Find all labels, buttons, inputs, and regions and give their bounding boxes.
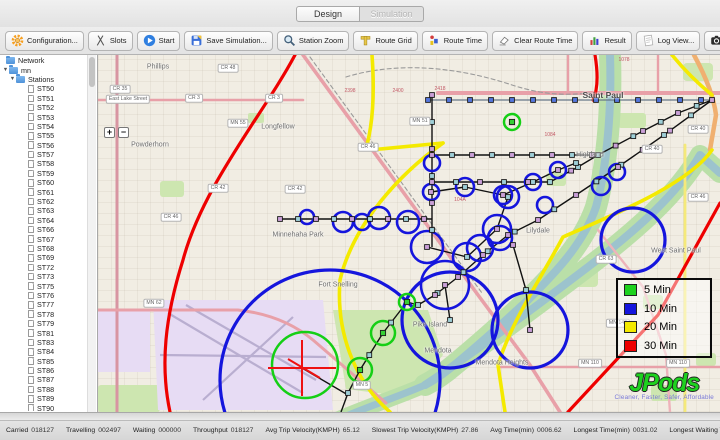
legend-color-swatch (624, 321, 637, 333)
station-label: ST52 (37, 103, 54, 112)
toolbar-button-label: Slots (110, 36, 127, 45)
travel-time-legend: 5 Min10 Min20 Min30 Min (616, 278, 712, 358)
station-file-icon (28, 245, 34, 253)
result-button[interactable]: Result (582, 31, 631, 51)
tree-node-station-st90[interactable]: ST90 (0, 403, 88, 411)
tree-node-station-st73[interactable]: ST73 (0, 272, 88, 281)
road-shield-label: CR 63 (596, 255, 617, 264)
status-field-value: 000000 (158, 427, 181, 434)
station-file-icon (28, 95, 34, 103)
station-label: ST59 (37, 169, 54, 178)
map-h-scrollbar[interactable] (0, 412, 720, 420)
house-number-label: 1078 (618, 57, 629, 63)
station-label: ST79 (37, 319, 54, 328)
station-file-icon (28, 132, 34, 140)
toolbar-button-label: Log View... (658, 36, 695, 45)
tree-node-station-st56[interactable]: ST56 (0, 141, 88, 150)
station-file-icon (28, 301, 34, 309)
place-label: Lilydale (526, 228, 550, 235)
station-label: ST66 (37, 225, 54, 234)
status-bar: Carried018127Travelling002497Waiting0000… (0, 420, 720, 440)
legend-row: 5 Min (624, 284, 704, 296)
slots-button[interactable]: Slots (88, 31, 133, 51)
tree-node-station-st83[interactable]: ST83 (0, 338, 88, 347)
status-field-value: 002497 (98, 427, 121, 434)
station-label: ST75 (37, 282, 54, 291)
status-slowest-trip-velocity-kmph: Slowest Trip Velocity(KMPH)27.86 (372, 427, 479, 434)
magnifier-icon (283, 34, 296, 47)
tree-node-station-st57[interactable]: ST57 (0, 150, 88, 159)
station-label: ST57 (37, 150, 54, 159)
tree-scrollbar[interactable] (87, 55, 96, 412)
station-file-icon (28, 113, 34, 121)
house-number-label: 2400 (392, 88, 403, 94)
station-label: ST61 (37, 188, 54, 197)
tab-strip: Design Simulation (0, 0, 720, 27)
station-label: ST62 (37, 197, 54, 206)
station-file-icon (28, 188, 34, 196)
place-label: Highland (576, 152, 604, 159)
status-field-value: 0031.02 (633, 427, 658, 434)
tree-node-station-st69[interactable]: ST69 (0, 253, 88, 262)
road-shield-label: CR 46 (358, 143, 379, 152)
status-field-value: 27.86 (461, 427, 478, 434)
station-label: ST77 (37, 300, 54, 309)
station-label: ST55 (37, 131, 54, 140)
status-longest-time-min: Longest Time(min)0031.02 (574, 427, 658, 434)
place-label: Powderhorn (131, 142, 169, 149)
road-shield-label: MN 110 (666, 359, 690, 368)
station-file-icon (28, 292, 34, 300)
station-file-icon (28, 217, 34, 225)
station-label: ST60 (37, 178, 54, 187)
station-file-icon (28, 310, 34, 318)
road-shield-label: CR 42 (208, 184, 229, 193)
map-graphics (98, 55, 720, 412)
station-label: ST90 (37, 404, 54, 411)
zoom-in-button[interactable]: + (104, 127, 115, 138)
station-label: ST64 (37, 216, 54, 225)
place-label: West Saint Paul (651, 248, 701, 255)
station-label: ST53 (37, 113, 54, 122)
place-label: Longfellow (261, 124, 294, 131)
tree-node-station-st81[interactable]: ST81 (0, 328, 88, 337)
tree-node-station-st60[interactable]: ST60 (0, 178, 88, 187)
status-field-label: Slowest Trip Velocity(KMPH) (372, 427, 459, 434)
toolbar-button-label: Station Zoom (299, 36, 344, 45)
station-label: ST76 (37, 291, 54, 300)
chart-icon (588, 34, 601, 47)
status-field-label: Throughput (193, 427, 228, 434)
toolbar: Configuration...SlotsStartSave Simulatio… (0, 27, 720, 55)
tree-node-network[interactable]: Network (0, 56, 88, 65)
legend-row: 10 Min (624, 303, 704, 315)
place-label: Phillips (147, 64, 169, 71)
station-file-icon (28, 329, 34, 337)
eraser-icon (498, 34, 511, 47)
status-field-label: Carried (6, 427, 28, 434)
zoom-out-button[interactable]: − (118, 127, 129, 138)
tree-node-station-st61[interactable]: ST61 (0, 187, 88, 196)
station-file-icon (28, 151, 34, 159)
road-shield-label: CR 40 (642, 145, 663, 154)
status-longest-waiting-time-min: Longest Waiting Time(min)0000.00 (669, 427, 720, 434)
station-label: ST78 (37, 310, 54, 319)
road-shield-label: CR 3 (185, 94, 203, 103)
station-file-icon (28, 179, 34, 187)
station-label: ST83 (37, 338, 54, 347)
tree-node-station-st62[interactable]: ST62 (0, 197, 88, 206)
road-shield-label: MN 62 (143, 299, 164, 308)
camera-icon (710, 34, 720, 47)
log-icon (642, 34, 655, 47)
house-number-label: 2398 (344, 88, 355, 94)
road-shield-label: CR 46 (161, 213, 182, 222)
expand-triangle-icon[interactable]: ▼ (9, 76, 16, 82)
status-field-value: 0006.62 (537, 427, 562, 434)
road-shield-label: CR 48 (218, 64, 239, 73)
station-file-icon (28, 376, 34, 384)
tree-node-station-st88[interactable]: ST88 (0, 385, 88, 394)
legend-label: 5 Min (644, 284, 671, 296)
status-avg-trip-velocity-kmph: Avg Trip Velocity(KMPH)65.12 (265, 427, 359, 434)
tree-node-station-st67[interactable]: ST67 (0, 234, 88, 243)
station-label: ST73 (37, 272, 54, 281)
log-view-button[interactable]: Log View... (636, 31, 701, 51)
folder-icon (9, 67, 18, 74)
tab-simulation[interactable]: Simulation (360, 6, 424, 22)
station-label: ST86 (37, 366, 54, 375)
station-label: ST67 (37, 235, 54, 244)
route-grid-button[interactable]: Route Grid (353, 31, 417, 51)
folder-icon (16, 76, 25, 83)
toolbar-button-label: Result (604, 36, 625, 45)
network-tree: Network▼mn▼StationsST50ST51ST52ST53ST54S… (0, 56, 88, 411)
place-label: Minnehaha Park (273, 232, 324, 239)
legend-color-swatch (624, 284, 637, 296)
station-file-icon (28, 141, 34, 149)
station-file-icon (28, 85, 34, 93)
tree-node-station-st89[interactable]: ST89 (0, 394, 88, 403)
jpods-logo-text: JPods (615, 371, 714, 395)
legend-row: 20 Min (624, 321, 704, 333)
station-file-icon (28, 404, 34, 411)
tree-node-station-st68[interactable]: ST68 (0, 244, 88, 253)
tree-node-station-st53[interactable]: ST53 (0, 112, 88, 121)
tree-node-station-st52[interactable]: ST52 (0, 103, 88, 112)
tree-node-station-st64[interactable]: ST64 (0, 216, 88, 225)
folder-icon (6, 57, 15, 64)
status-avg-time-min: Avg Time(min)0006.62 (490, 427, 561, 434)
gear-icon (11, 34, 24, 47)
status-field-label: Travelling (66, 427, 95, 434)
station-label: ST58 (37, 159, 54, 168)
place-label: Pike Island (413, 322, 447, 329)
capture-screen-button[interactable]: Capture Screen (704, 31, 720, 51)
tree-node-label: Stations (28, 75, 54, 84)
legend-row: 30 Min (624, 340, 704, 352)
station-label: ST84 (37, 347, 54, 356)
road-shield-label: CR 3 (265, 94, 283, 103)
save-simulation-button[interactable]: Save Simulation... (184, 31, 272, 51)
tree-node-station-st50[interactable]: ST50 (0, 84, 88, 93)
toolbar-button-label: Start (159, 36, 175, 45)
toolbar-button-label: Route Time (444, 36, 482, 45)
road-shield-label: MN 51 (409, 117, 430, 126)
station-file-icon (28, 348, 34, 356)
tree-node-label: Network (18, 56, 44, 65)
clear-route-time-button[interactable]: Clear Route Time (492, 31, 578, 51)
legend-label: 30 Min (644, 340, 677, 352)
station-label: ST72 (37, 263, 54, 272)
toolbar-button-label: Route Grid (375, 36, 411, 45)
station-label: ST81 (37, 329, 54, 338)
place-label: Fort Snelling (318, 282, 357, 289)
jpods-logo: JPods Cleaner, Faster, Safer, Affordable (615, 371, 714, 401)
configuration-button[interactable]: Configuration... (5, 31, 84, 51)
place-label: Mendota (424, 348, 451, 355)
legend-color-swatch (624, 340, 637, 352)
tree-node-mn[interactable]: ▼mn (0, 65, 88, 74)
station-file-icon (28, 273, 34, 281)
station-label: ST50 (37, 84, 54, 93)
road-shield-label: CR 35 (110, 85, 131, 94)
station-file-icon (28, 282, 34, 290)
station-file-icon (28, 339, 34, 347)
station-file-icon (28, 395, 34, 403)
tree-node-station-st58[interactable]: ST58 (0, 159, 88, 168)
save-icon (190, 34, 203, 47)
jpods-logo-tagline: Cleaner, Faster, Safer, Affordable (615, 394, 714, 401)
station-label: ST87 (37, 375, 54, 384)
status-field-value: 018127 (231, 427, 254, 434)
station-label: ST88 (37, 385, 54, 394)
tree-node-station-st63[interactable]: ST63 (0, 206, 88, 215)
status-field-label: Longest Waiting Time(min) (669, 427, 720, 434)
tree-node-stations[interactable]: ▼Stations (0, 75, 88, 84)
station-file-icon (28, 198, 34, 206)
tree-node-station-st85[interactable]: ST85 (0, 357, 88, 366)
tree-node-station-st51[interactable]: ST51 (0, 94, 88, 103)
road-shield-label: CR 42 (285, 185, 306, 194)
tree-node-station-st72[interactable]: ST72 (0, 263, 88, 272)
place-label: Mendota Heights (476, 360, 529, 367)
toolbar-button-label: Save Simulation... (206, 36, 266, 45)
status-field-label: Longest Time(min) (574, 427, 630, 434)
status-field-label: Avg Trip Velocity(KMPH) (265, 427, 339, 434)
road-shield-label: CR 40 (688, 125, 709, 134)
station-label: ST89 (37, 394, 54, 403)
station-file-icon (28, 226, 34, 234)
status-field-value: 018127 (31, 427, 54, 434)
tree-node-station-st54[interactable]: ST54 (0, 122, 88, 131)
road-shield-label: MN 110 (578, 359, 602, 368)
slots-icon (94, 34, 107, 47)
station-label: ST69 (37, 253, 54, 262)
station-file-icon (28, 207, 34, 215)
status-carried: Carried018127 (6, 427, 54, 434)
toolbar-button-label: Configuration... (27, 36, 78, 45)
tab-design[interactable]: Design (296, 6, 360, 22)
tree-node-station-st66[interactable]: ST66 (0, 225, 88, 234)
tree-node-station-st84[interactable]: ST84 (0, 347, 88, 356)
road-shield-label: East Lake Street (106, 95, 150, 104)
tree-node-station-st76[interactable]: ST76 (0, 291, 88, 300)
tree-node-station-st77[interactable]: ST77 (0, 300, 88, 309)
station-file-icon (28, 235, 34, 243)
road-shield-label: MN 5 (353, 381, 371, 390)
tree-node-station-st87[interactable]: ST87 (0, 375, 88, 384)
legend-label: 20 Min (644, 321, 677, 333)
station-file-icon (28, 254, 34, 262)
expand-triangle-icon[interactable]: ▼ (2, 67, 9, 73)
start-button[interactable]: Start (137, 31, 181, 51)
house-number-label: 2418 (434, 86, 445, 92)
station-file-icon (28, 170, 34, 178)
station-file-icon (28, 160, 34, 168)
house-number-label: 1084 (544, 132, 555, 138)
tree-node-station-st75[interactable]: ST75 (0, 281, 88, 290)
station-file-icon (28, 386, 34, 394)
station-file-icon (28, 357, 34, 365)
status-field-label: Avg Time(min) (490, 427, 534, 434)
station-label: ST68 (37, 244, 54, 253)
route-grid-icon (359, 34, 372, 47)
route-time-button[interactable]: Route Time (422, 31, 488, 51)
station-file-icon (28, 123, 34, 131)
status-travelling: Travelling002497 (66, 427, 121, 434)
station-file-icon (28, 367, 34, 375)
toolbar-button-label: Clear Route Time (514, 36, 572, 45)
map-canvas[interactable]: PhillipsPowderhornLongfellowSaint PaulHi… (98, 55, 720, 412)
tree-node-station-st86[interactable]: ST86 (0, 366, 88, 375)
station-label: ST51 (37, 94, 54, 103)
play-icon (143, 34, 156, 47)
station-file-icon (28, 264, 34, 272)
road-shield-label: MN 55 (227, 119, 248, 128)
legend-color-swatch (624, 303, 637, 315)
legend-label: 10 Min (644, 303, 677, 315)
station-file-icon (28, 320, 34, 328)
jpods-app-window: Design Simulation Configuration...SlotsS… (0, 0, 720, 440)
station-file-icon (28, 104, 34, 112)
station-label: ST54 (37, 122, 54, 131)
network-tree-panel: Network▼mn▼StationsST50ST51ST52ST53ST54S… (0, 55, 98, 412)
place-label: Saint Paul (582, 90, 623, 100)
status-field-value: 65.12 (343, 427, 360, 434)
station-label: ST63 (37, 206, 54, 215)
route-time-icon (428, 34, 441, 47)
tree-node-station-st79[interactable]: ST79 (0, 319, 88, 328)
station-zoom-button[interactable]: Station Zoom (277, 31, 350, 51)
tree-scrollbar-thumb[interactable] (89, 57, 95, 87)
status-throughput: Throughput018127 (193, 427, 253, 434)
status-field-label: Waiting (133, 427, 155, 434)
house-number-label: 104A (454, 197, 466, 203)
station-label: ST85 (37, 357, 54, 366)
tree-node-label: mn (21, 66, 31, 75)
road-shield-label: CR 46 (688, 193, 709, 202)
tree-node-station-st78[interactable]: ST78 (0, 310, 88, 319)
tree-node-station-st59[interactable]: ST59 (0, 169, 88, 178)
station-label: ST56 (37, 141, 54, 150)
tree-node-station-st55[interactable]: ST55 (0, 131, 88, 140)
map-zoom-control: + − (104, 127, 129, 138)
status-waiting: Waiting000000 (133, 427, 181, 434)
